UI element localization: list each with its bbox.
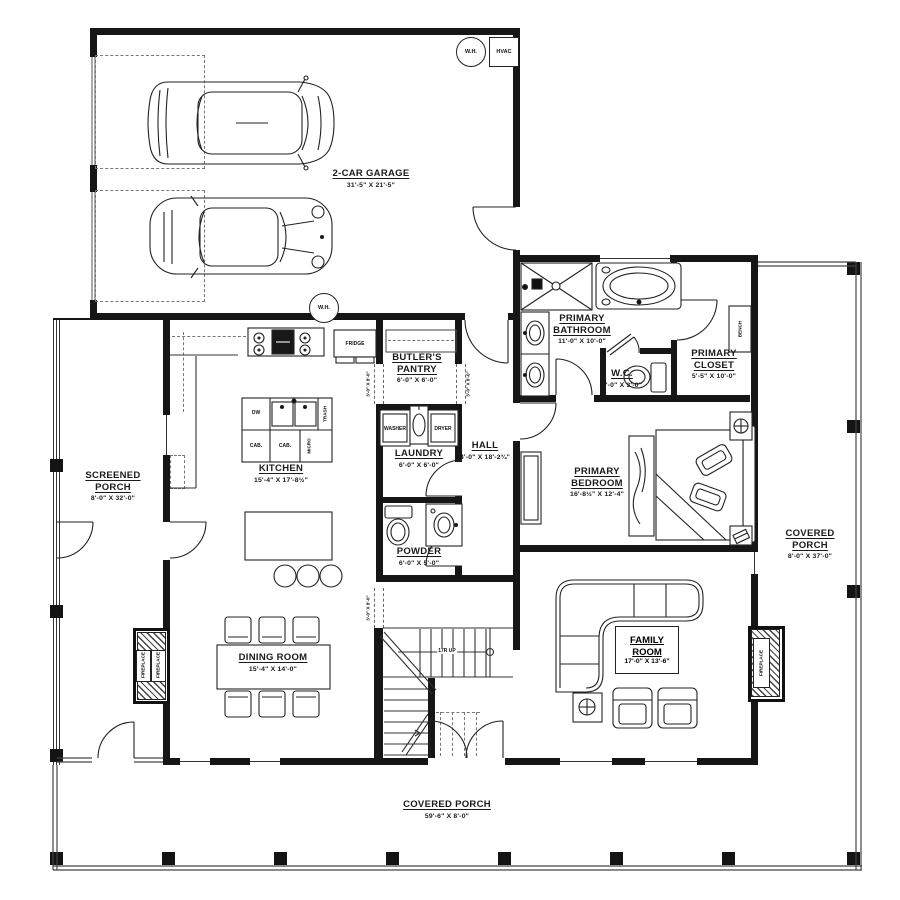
garage-label: 2-CAR GARAGE 31'-5" X 21'-5" (333, 168, 410, 191)
car-sedan (148, 76, 334, 170)
micro-label: MICRO (307, 438, 312, 453)
kitchen-label: KITCHEN 15'-4" X 17'-8½" (254, 463, 308, 486)
primary-bedroom-label: PRIMARY BEDROOM 16'-8½" X 12'-4" (570, 466, 624, 501)
stool (320, 565, 342, 587)
stair-count-label: 17R UP (437, 648, 457, 654)
fireplace-label: FIREPLACE (141, 652, 146, 678)
hall-label: HALL 4'-0" X 18'-2¾" (460, 440, 510, 463)
laundry-label: LAUNDRY 6'-0" X 6'-0" (395, 448, 443, 471)
powder-fixtures (385, 504, 462, 546)
bedroom-furniture (521, 412, 755, 545)
headboard (743, 426, 755, 542)
kitchen-island (242, 398, 342, 587)
primary-bathroom-label: PRIMARY BATHROOM 11'-0" X 10'-0" (553, 313, 611, 348)
washer-label: WASHER (384, 426, 406, 432)
fireplace-hatch (137, 681, 166, 700)
cab-label: CAB. (279, 443, 291, 449)
opening-dims: 3'-0" X 8'-0" (466, 371, 471, 396)
opening-dims: 3'-0" X 8'-0" (366, 371, 371, 396)
plan-linework (0, 0, 900, 900)
fireplace-label: FIREPLACE (156, 652, 161, 678)
water-heater-label: W.H. (318, 305, 330, 311)
covered-porch-bottom-label: COVERED PORCH 59'-6" X 8'-0" (403, 799, 491, 822)
bench-label: BENCH (738, 321, 743, 337)
floor-plan: FIREPLACE FIREPLACE FIREPLACE W.H. HVAC … (0, 0, 900, 900)
opening-dims: 3'-0" X 8'-0" (366, 595, 371, 620)
powder-label: POWDER 6'-0" X 5'-0" (397, 546, 442, 569)
screened-porch-label: SCREENED PORCH 8'-0" X 32'-0" (85, 470, 140, 505)
water-heater: W.H. (309, 293, 339, 323)
stool (297, 565, 319, 587)
toilet-tank (651, 363, 666, 392)
island-seating (245, 512, 332, 560)
cab-label: CAB. (250, 443, 262, 449)
dryer-label: DRYER (434, 426, 451, 432)
trash-label: TRASH (323, 406, 328, 422)
dw-label: DW (252, 410, 260, 416)
fireplace-label: FIREPLACE (759, 650, 764, 676)
covered-porch-right-label: COVERED PORCH 8'-0" X 37'-0" (785, 528, 834, 563)
fridge-label: FRIDGE (346, 341, 365, 347)
family-room-label: FAMILY ROOM 17'-0" X 13'-6" (615, 626, 679, 674)
dining-room-label: DINING ROOM 15'-4" X 14'-0" (239, 652, 308, 675)
butlers-pantry-label: BUTLER'S PANTRY 6'-0" X 6'-0" (392, 352, 442, 387)
wc-label: W.C. 5'-0" X 3'-0" (602, 368, 642, 391)
stool (274, 565, 296, 587)
car-sports (150, 196, 332, 278)
primary-closet-label: PRIMARY CLOSET 5'-5" X 10'-0" (691, 348, 737, 383)
fireplace-hatch (137, 632, 166, 651)
